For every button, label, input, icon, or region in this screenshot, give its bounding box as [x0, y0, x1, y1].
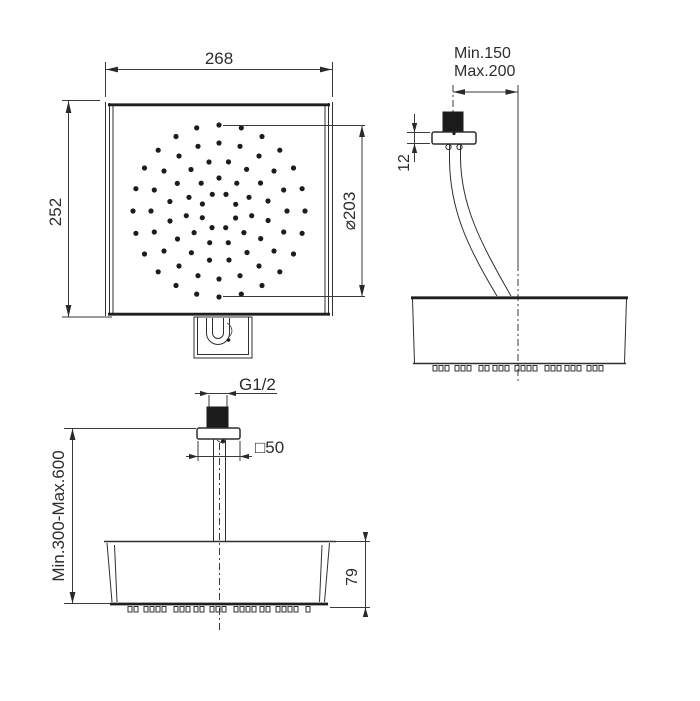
dim-head-height: 79 [330, 532, 370, 617]
dim-front-height: 252 [46, 101, 112, 318]
escutcheon-plate-side [432, 132, 476, 150]
front-head-outline [106, 102, 333, 316]
wall-nipple [443, 112, 463, 133]
dim-plate-square: □50 [186, 438, 284, 461]
technical-drawing: 268 252 ⌀203 Min.150 Max.200 [0, 0, 700, 701]
ceiling-view: G1/2 □50 [49, 375, 370, 632]
dim-spray-diameter: ⌀203 [223, 126, 365, 297]
spray-pattern [130, 122, 307, 299]
dim-reach: Min.150 Max.200 [453, 45, 518, 112]
label-drop-range: Min.300-Max.600 [49, 450, 68, 581]
label-head-height: 79 [344, 568, 361, 586]
ceiling-nipple [207, 407, 228, 428]
side-view: Min.150 Max.200 12 [396, 45, 628, 383]
dim-thread: G1/2 [195, 375, 277, 407]
label-plate-square: □50 [255, 438, 284, 457]
dim-plate-thickness: 12 [396, 114, 430, 172]
side-head [411, 298, 628, 371]
label-thread: G1/2 [239, 375, 276, 394]
wall-arm-bracket [194, 317, 252, 358]
ceiling-escutcheon [197, 428, 240, 444]
drawing-canvas: 268 252 ⌀203 Min.150 Max.200 [0, 0, 700, 701]
label-reach-min: Min.150 [454, 45, 511, 62]
front-view: 268 252 ⌀203 [46, 49, 365, 358]
shower-arm [450, 144, 512, 296]
label-front-width: 268 [205, 49, 233, 68]
label-plate-thickness: 12 [396, 154, 413, 172]
dim-drop-range: Min.300-Max.600 [49, 429, 196, 604]
label-front-height: 252 [46, 198, 65, 226]
dim-front-width: 268 [106, 49, 333, 97]
label-reach-max: Max.200 [454, 63, 515, 80]
label-spray-diameter: ⌀203 [340, 192, 359, 231]
